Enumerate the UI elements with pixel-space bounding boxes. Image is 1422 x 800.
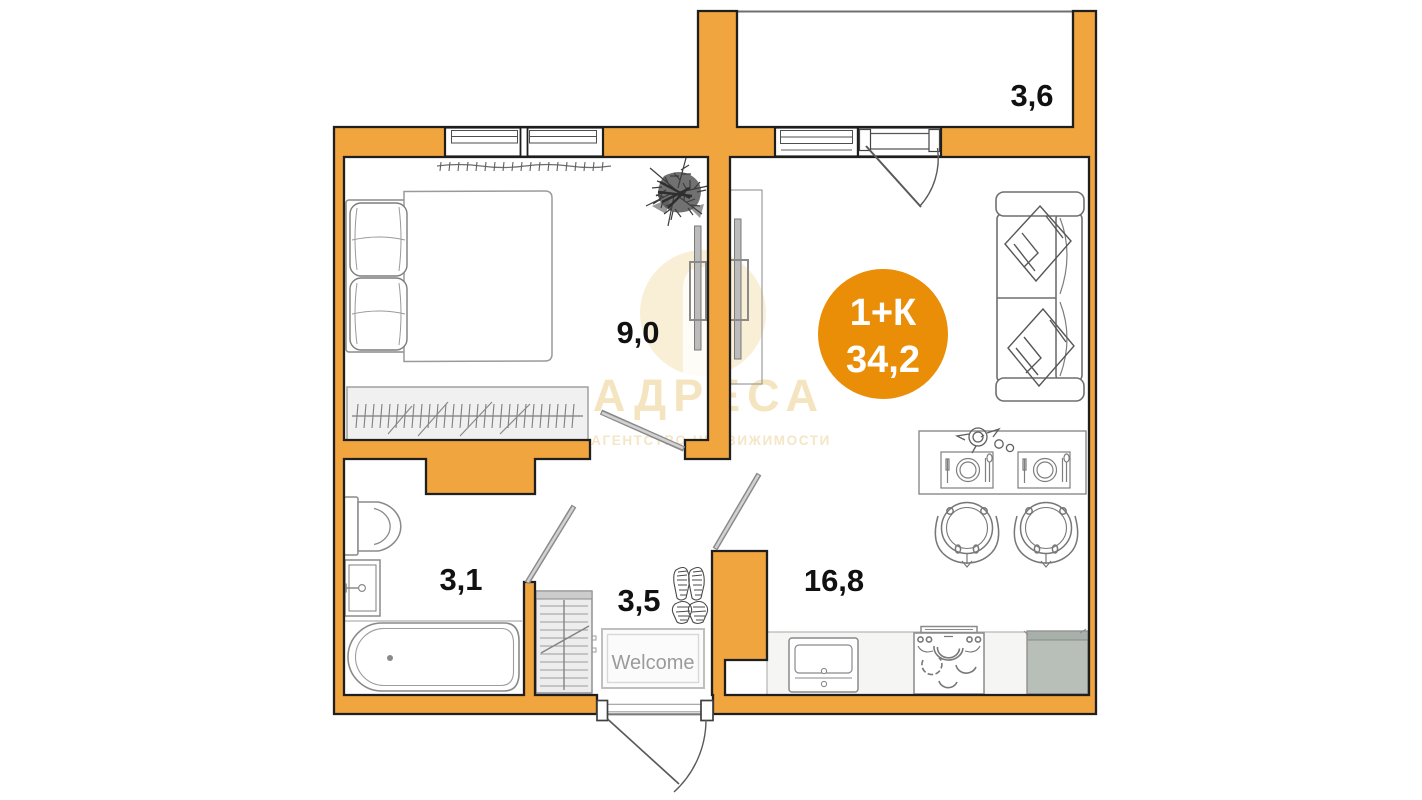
svg-text:3,5: 3,5 [617, 583, 660, 618]
svg-text:3,6: 3,6 [1010, 78, 1053, 113]
svg-text:3,1: 3,1 [439, 562, 482, 597]
svg-text:Welcome: Welcome [612, 652, 695, 674]
svg-text:16,8: 16,8 [804, 563, 864, 598]
svg-text:1+К: 1+К [850, 292, 917, 334]
svg-text:34,2: 34,2 [846, 339, 920, 381]
svg-text:9,0: 9,0 [616, 315, 659, 350]
